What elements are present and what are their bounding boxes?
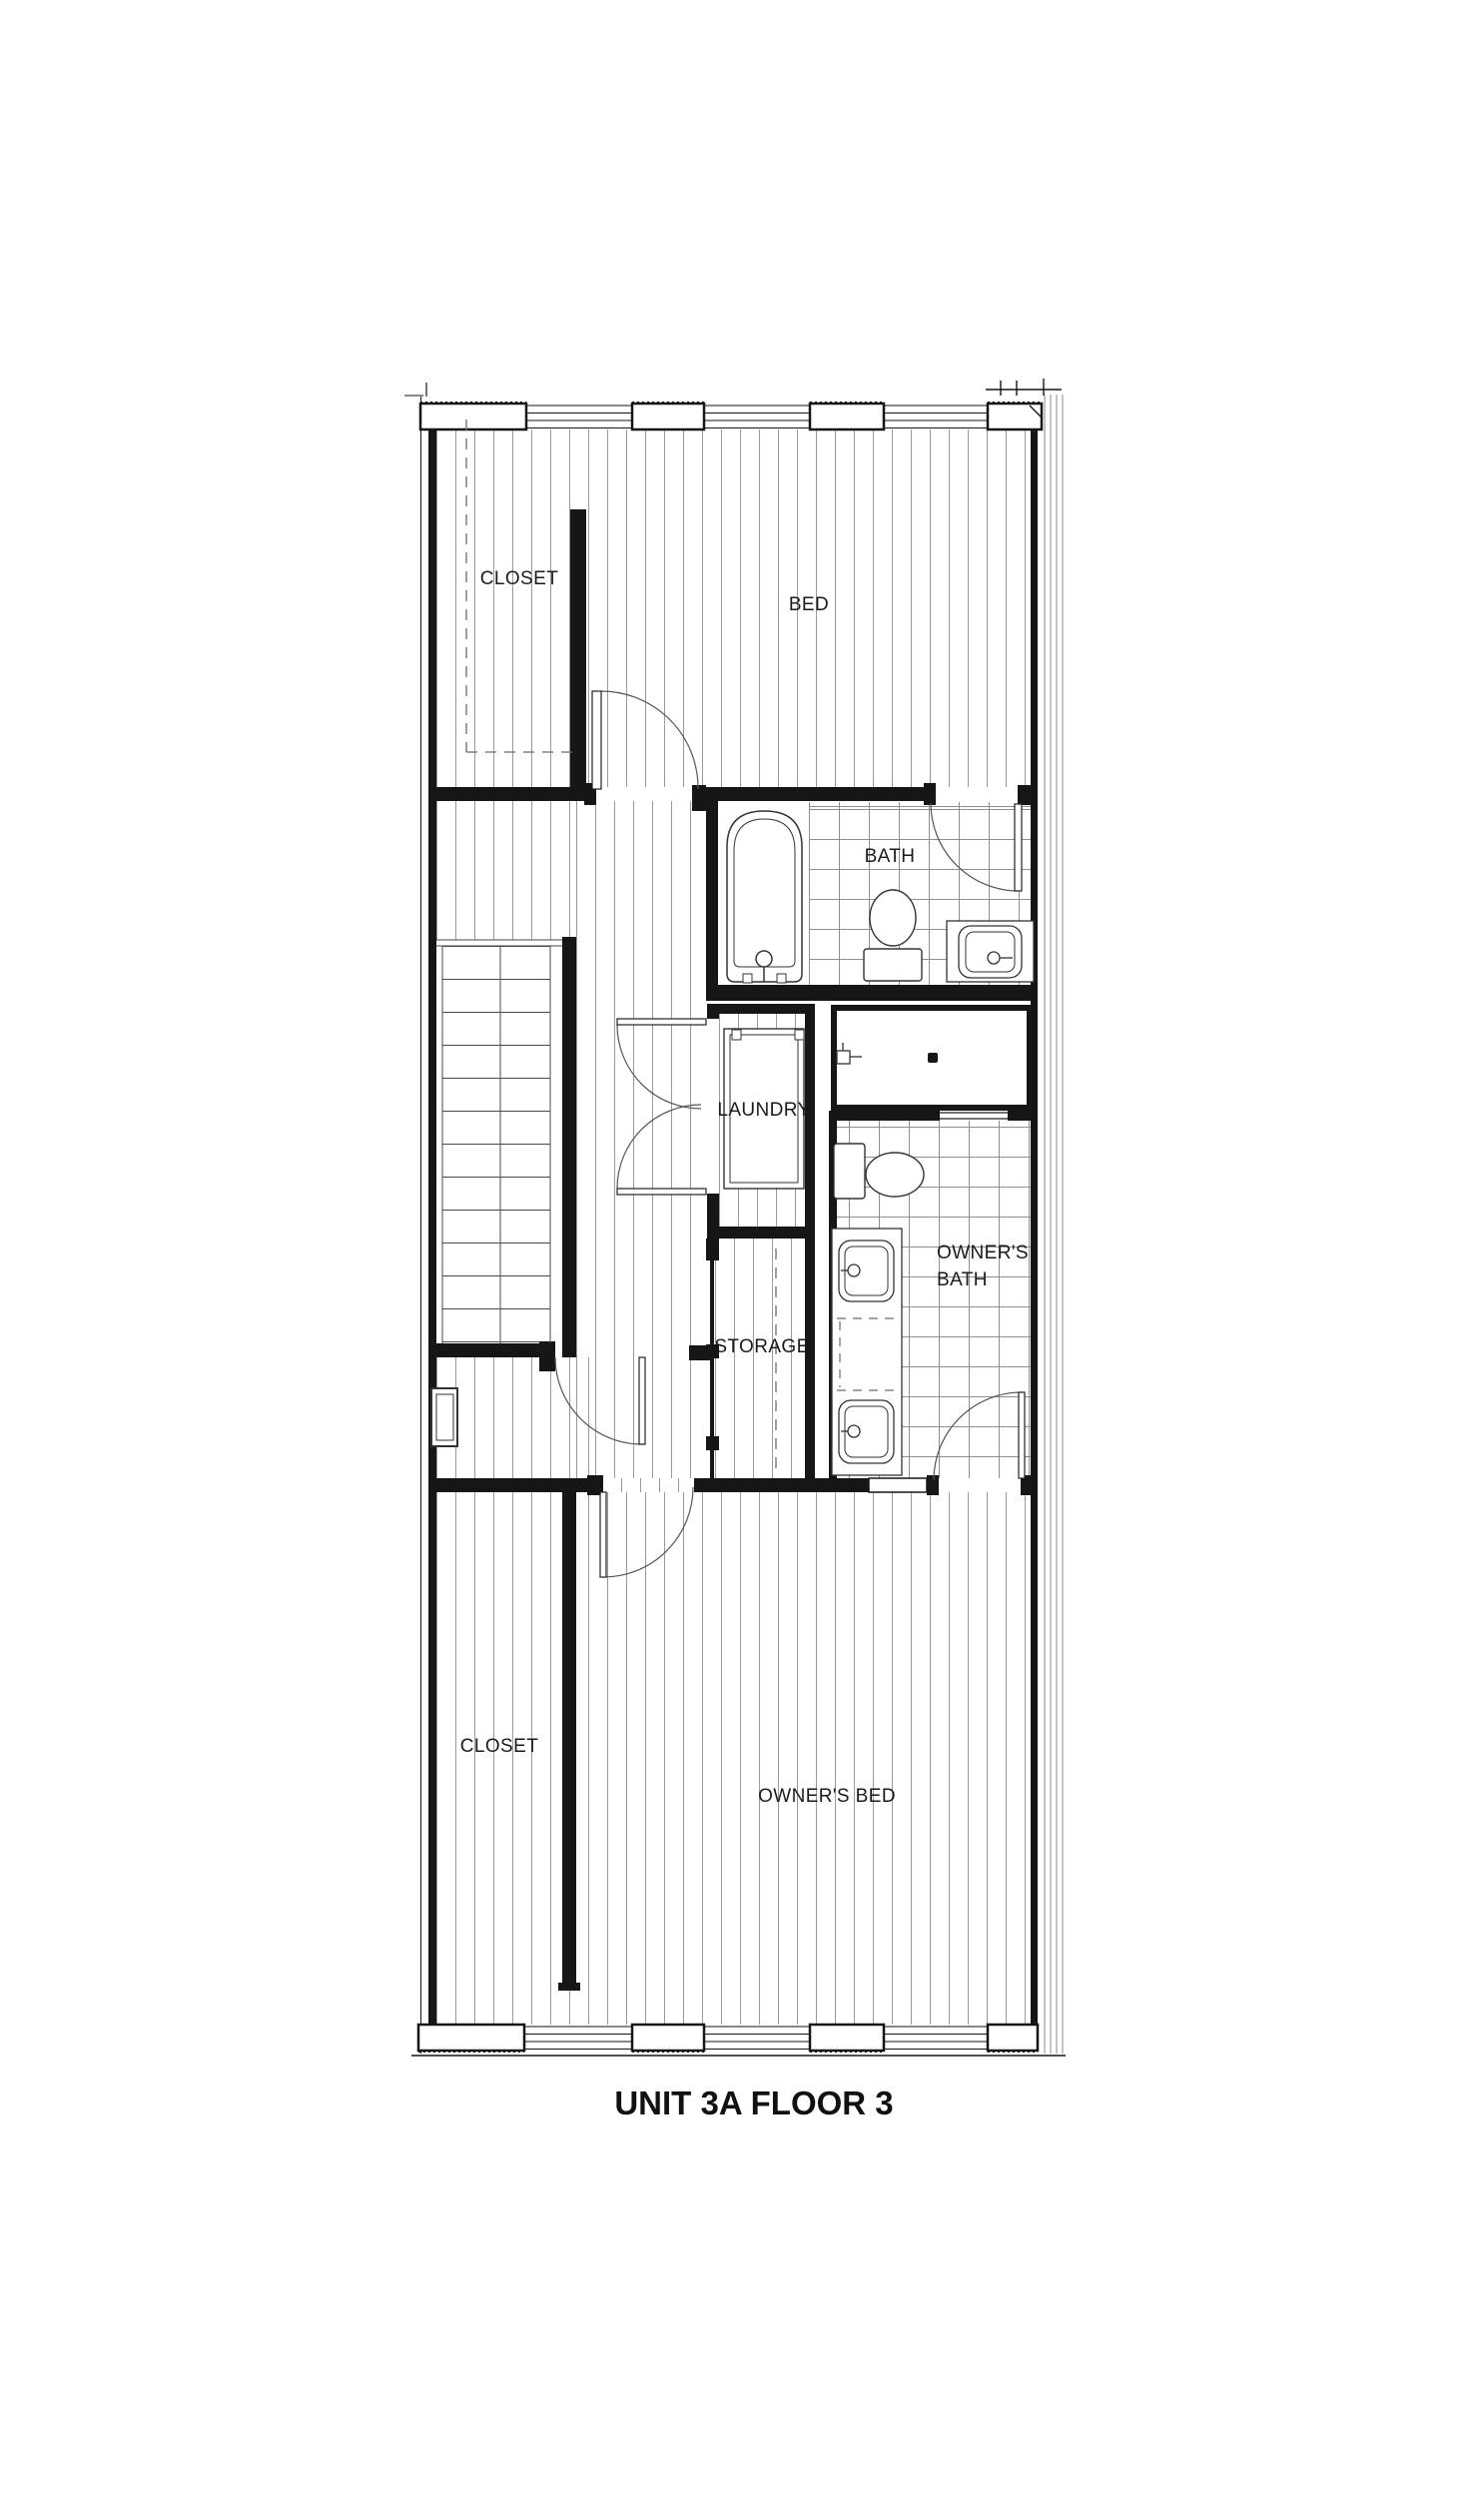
room-label-bath: BATH [865,846,916,868]
plan-linework [0,0,1484,2497]
room-label-owners-bath-line2: BATH [937,1269,988,1291]
room-label-storage: STORAGE [714,1336,809,1358]
room-label-closet-upper: CLOSET [480,568,558,590]
floorplan-sheet: CLOSET BED BATH LAUNDRY STORAGE OWNER'S … [0,0,1484,2497]
room-label-owners-bed: OWNER'S BED [758,1786,896,1808]
room-label-closet-lower: CLOSET [460,1736,538,1758]
plan-title: UNIT 3A FLOOR 3 [614,2084,893,2122]
room-label-owners-bath-line1: OWNER'S [937,1243,1029,1264]
room-label-bed: BED [789,594,829,616]
room-label-laundry: LAUNDRY [717,1100,810,1122]
